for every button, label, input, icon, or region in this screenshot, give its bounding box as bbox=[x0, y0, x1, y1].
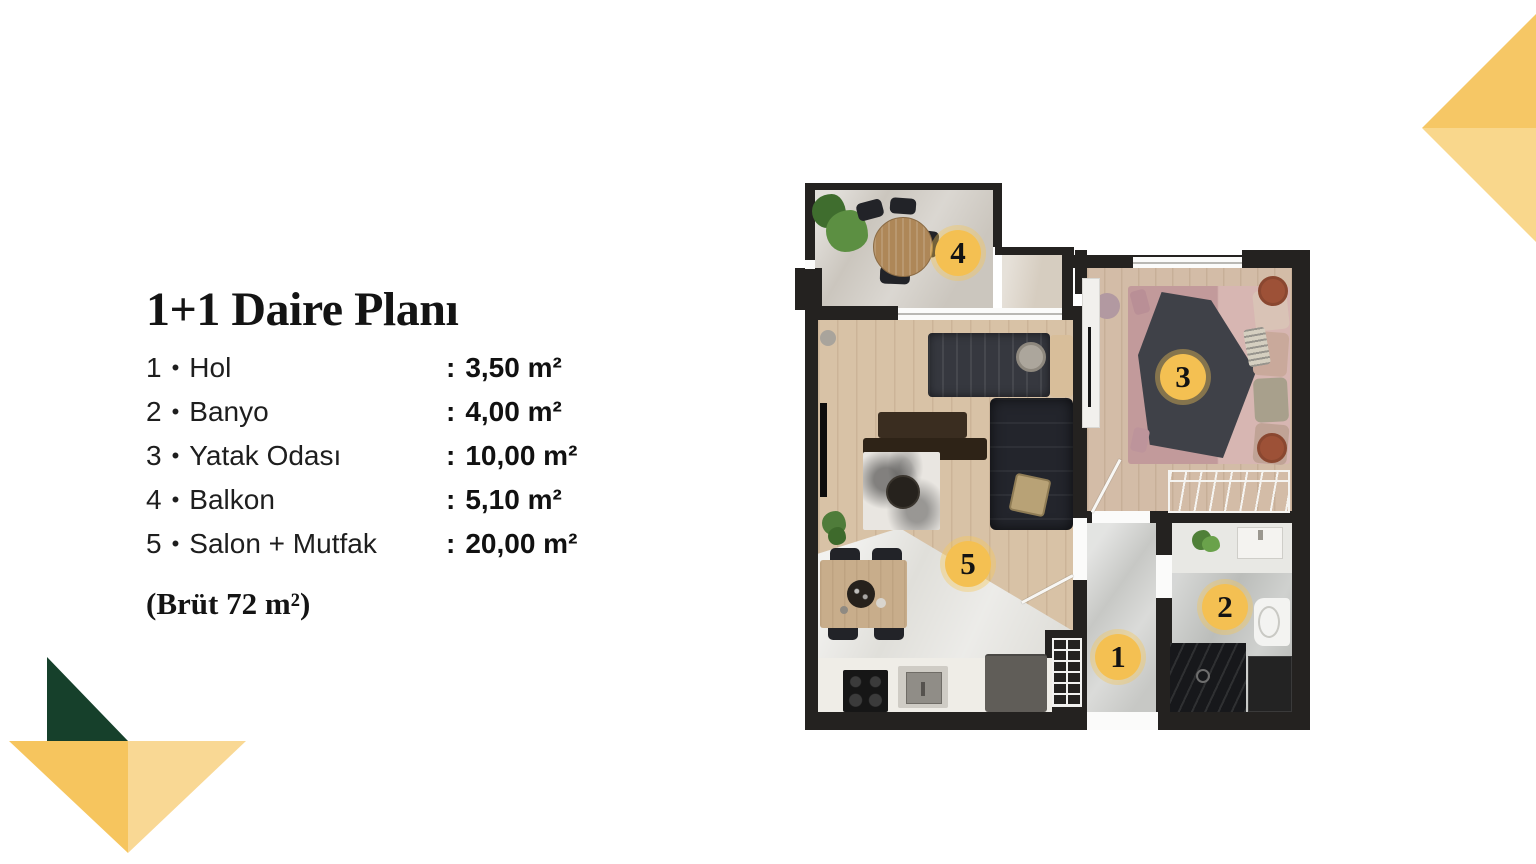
floor-plan: 1 2 3 4 5 bbox=[802, 178, 1310, 730]
wall bbox=[795, 268, 822, 310]
table-decor bbox=[876, 598, 886, 608]
door-handle bbox=[1088, 327, 1091, 407]
marker-number: 1 bbox=[1110, 639, 1126, 675]
cooktop bbox=[843, 670, 888, 712]
corner-triangle-bottom-left-gold-dark bbox=[9, 741, 128, 853]
nightstand bbox=[1258, 276, 1288, 306]
room-marker-yatak-odasi: 3 bbox=[1160, 354, 1206, 400]
daybed-pillow bbox=[1016, 342, 1046, 372]
table-decor bbox=[840, 606, 848, 614]
washing-machine bbox=[1248, 656, 1292, 712]
legend-row-yatak-odasi: 3•Yatak Odası :10,00 m² bbox=[146, 434, 616, 478]
balcony-chair bbox=[889, 197, 916, 215]
bed-pillow bbox=[1253, 377, 1289, 423]
fridge bbox=[985, 654, 1047, 712]
room-number: 1 bbox=[146, 352, 162, 383]
round-coffee-table bbox=[886, 475, 920, 509]
colon: : bbox=[446, 396, 455, 427]
balcony-floor bbox=[1002, 255, 1062, 310]
legend-row-balkon: 4•Balkon :5,10 m² bbox=[146, 478, 616, 522]
room-name: Salon + Mutfak bbox=[189, 528, 377, 559]
plant bbox=[822, 505, 848, 545]
bathroom-plant bbox=[1192, 528, 1222, 556]
bullet-separator: • bbox=[172, 443, 180, 468]
room-area: 10,00 m² bbox=[465, 440, 577, 471]
daybed-bolster bbox=[1050, 335, 1073, 397]
wardrobe-rail-bar bbox=[1170, 480, 1288, 482]
corner-triangle-top-right-light bbox=[1422, 128, 1536, 242]
wardrobe-rail bbox=[1168, 470, 1290, 513]
sliding-door-panel bbox=[1082, 278, 1100, 428]
doorway-living-hall bbox=[1073, 518, 1087, 580]
coffee-table bbox=[878, 412, 967, 438]
faucet bbox=[921, 682, 925, 696]
plant-leaf bbox=[828, 527, 846, 545]
nightstand bbox=[1257, 433, 1287, 463]
room-name: Balkon bbox=[189, 484, 275, 515]
wall bbox=[993, 183, 1002, 247]
room-number: 5 bbox=[146, 528, 162, 559]
legend-row-banyo: 2•Banyo :4,00 m² bbox=[146, 390, 616, 434]
colon: : bbox=[446, 484, 455, 515]
room-marker-hol: 1 bbox=[1095, 634, 1141, 680]
room-name: Hol bbox=[189, 352, 231, 383]
plant-leaf bbox=[810, 230, 840, 260]
radiator bbox=[1052, 638, 1082, 707]
room-marker-banyo: 2 bbox=[1202, 584, 1248, 630]
corner-triangle-bottom-left-gold-light bbox=[128, 741, 246, 853]
room-area: 4,00 m² bbox=[465, 396, 562, 427]
window bbox=[1133, 257, 1242, 268]
room-number: 4 bbox=[146, 484, 162, 515]
room-name: Banyo bbox=[189, 396, 268, 427]
shower-drain bbox=[1196, 669, 1210, 683]
hall-floor bbox=[1087, 523, 1156, 712]
faucet bbox=[1258, 530, 1263, 540]
room-number: 3 bbox=[146, 440, 162, 471]
wall bbox=[1292, 250, 1310, 730]
gross-area-label: (Brüt 72 m²) bbox=[146, 586, 310, 622]
marker-number: 2 bbox=[1217, 589, 1233, 625]
table-decor bbox=[847, 580, 875, 608]
entrance-threshold bbox=[1087, 712, 1158, 730]
room-area: 3,50 m² bbox=[465, 352, 562, 383]
room-name: Yatak Odası bbox=[189, 440, 341, 471]
legend-row-salon-mutfak: 5•Salon + Mutfak :20,00 m² bbox=[146, 522, 616, 566]
shower bbox=[1170, 643, 1246, 712]
room-marker-salon-mutfak: 5 bbox=[945, 541, 991, 587]
wall bbox=[805, 712, 1310, 730]
bullet-separator: • bbox=[172, 355, 180, 380]
toilet-bowl bbox=[1258, 606, 1280, 638]
room-area: 20,00 m² bbox=[465, 528, 577, 559]
bullet-separator: • bbox=[172, 531, 180, 556]
bathroom-sink bbox=[1237, 527, 1283, 559]
doorway-bedroom bbox=[1092, 511, 1150, 523]
room-area: 5,10 m² bbox=[465, 484, 562, 515]
corner-triangle-top-right-dark bbox=[1422, 14, 1536, 128]
doorway-bathroom bbox=[1156, 555, 1172, 598]
bullet-separator: • bbox=[172, 399, 180, 424]
toilet bbox=[1254, 598, 1290, 646]
bullet-separator: • bbox=[172, 487, 180, 512]
legend-row-hol: 1•Hol :3,50 m² bbox=[146, 346, 616, 390]
wall bbox=[815, 306, 898, 320]
wall bbox=[805, 183, 1002, 190]
wall bbox=[805, 306, 818, 730]
plant-pot bbox=[820, 330, 836, 346]
room-legend: 1•Hol :3,50 m² 2•Banyo :4,00 m² 3•Yatak … bbox=[146, 346, 616, 566]
corner-triangle-bottom-left-green bbox=[47, 657, 128, 741]
marker-number: 4 bbox=[950, 235, 966, 271]
marker-number: 5 bbox=[960, 546, 976, 582]
colon: : bbox=[446, 528, 455, 559]
page-title: 1+1 Daire Planı bbox=[146, 282, 458, 337]
kitchen-sink bbox=[898, 666, 948, 708]
colon: : bbox=[446, 440, 455, 471]
colon: : bbox=[446, 352, 455, 383]
slide: 1+1 Daire Planı 1•Hol :3,50 m² 2•Banyo :… bbox=[0, 0, 1536, 864]
room-marker-balkon: 4 bbox=[935, 230, 981, 276]
window bbox=[898, 308, 1062, 320]
plant-leaf bbox=[1202, 536, 1220, 552]
wall bbox=[1062, 250, 1073, 310]
marker-number: 3 bbox=[1175, 359, 1191, 395]
sofa-pillow bbox=[1008, 473, 1051, 518]
room-number: 2 bbox=[146, 396, 162, 427]
balcony-table bbox=[873, 217, 933, 277]
tv-unit bbox=[820, 403, 827, 497]
